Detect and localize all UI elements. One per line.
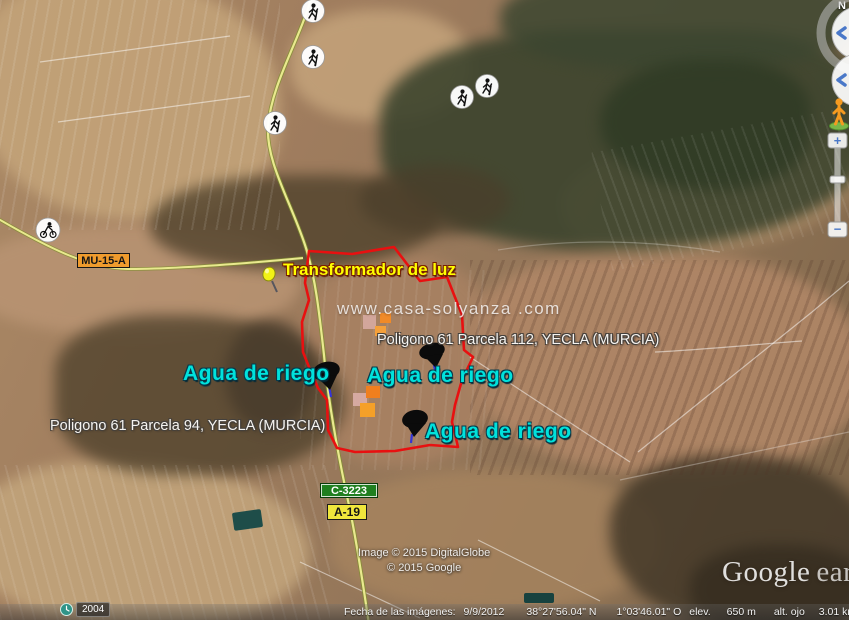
navigation-controls: + − xyxy=(792,0,849,260)
watermark: www.casa-solyanza .com xyxy=(337,300,561,318)
eye-altitude-label: alt. ojo xyxy=(774,606,805,618)
placemark-label-transformador[interactable]: Transformador de luz xyxy=(283,261,456,279)
copyright-line2: © 2015 Google xyxy=(358,561,490,576)
farm-tracks xyxy=(40,36,849,618)
placemark-label-parcela-94[interactable]: Poligono 61 Parcela 94, YECLA (MURCIA) xyxy=(50,419,325,434)
time-badge-year[interactable]: 2004 xyxy=(76,602,110,617)
hiker-marker-icon[interactable] xyxy=(476,75,499,98)
eye-altitude-value: 3.01 km xyxy=(819,606,849,618)
time-badge[interactable]: 2004 xyxy=(60,602,110,617)
elevation-value: 650 m xyxy=(727,606,756,618)
placemark-label-parcela-112[interactable]: Poligono 61 Parcela 112, YECLA (MURCIA) xyxy=(377,333,659,348)
water-reservoir xyxy=(232,509,263,531)
placemark-label-agua-middle[interactable]: Agua de riego xyxy=(367,365,514,387)
hiker-marker-icon[interactable] xyxy=(264,112,287,135)
logo-earth: earth xyxy=(816,556,849,588)
longitude-value: 1°03'46.01" O xyxy=(616,606,681,618)
zoom-slider-handle[interactable] xyxy=(830,176,845,183)
imagery-date-value: 9/9/2012 xyxy=(463,606,504,618)
cyclist-marker-icon[interactable] xyxy=(36,218,60,242)
hiker-marker-icon[interactable] xyxy=(451,86,474,109)
logo-google: Google xyxy=(722,556,810,588)
imagery-date-label: Fecha de las imágenes: xyxy=(344,606,455,618)
hiker-marker-icon[interactable] xyxy=(302,46,325,69)
zoom-control: + − xyxy=(828,133,847,237)
imagery-copyright: Image © 2015 DigitalGlobe © 2015 Google xyxy=(358,546,490,576)
google-earth-logo: Googleearth xyxy=(722,556,849,589)
photo-overlay-squares-lower xyxy=(353,386,380,417)
hiker-marker-icon[interactable] xyxy=(302,0,325,23)
hiker-markers xyxy=(36,0,499,242)
road-sign-c-3223: C-3223 xyxy=(320,483,378,498)
road-sign-a-19: A-19 xyxy=(327,504,367,520)
history-clock-icon xyxy=(60,603,73,616)
copyright-line1: Image © 2015 DigitalGlobe xyxy=(358,546,490,561)
latitude-value: 38°27'56.04" N xyxy=(526,606,596,618)
zoom-out-label: − xyxy=(834,222,842,237)
zoom-in-label: + xyxy=(834,133,842,148)
road-lines xyxy=(0,0,369,620)
road-sign-mu-15-a: MU-15-A xyxy=(77,253,130,268)
placemark-label-agua-left[interactable]: Agua de riego xyxy=(183,363,330,385)
zoom-slider-track[interactable] xyxy=(835,148,841,222)
google-earth-viewport: Transformador de luz www.casa-solyanza .… xyxy=(0,0,849,620)
water-reservoir xyxy=(524,593,554,603)
elevation-label: elev. xyxy=(689,606,710,618)
placemark-label-agua-bottom[interactable]: Agua de riego xyxy=(425,421,572,443)
yellow-pushpin-icon[interactable] xyxy=(261,265,277,292)
status-bar: Fecha de las imágenes: 9/9/2012 38°27'56… xyxy=(0,604,849,620)
